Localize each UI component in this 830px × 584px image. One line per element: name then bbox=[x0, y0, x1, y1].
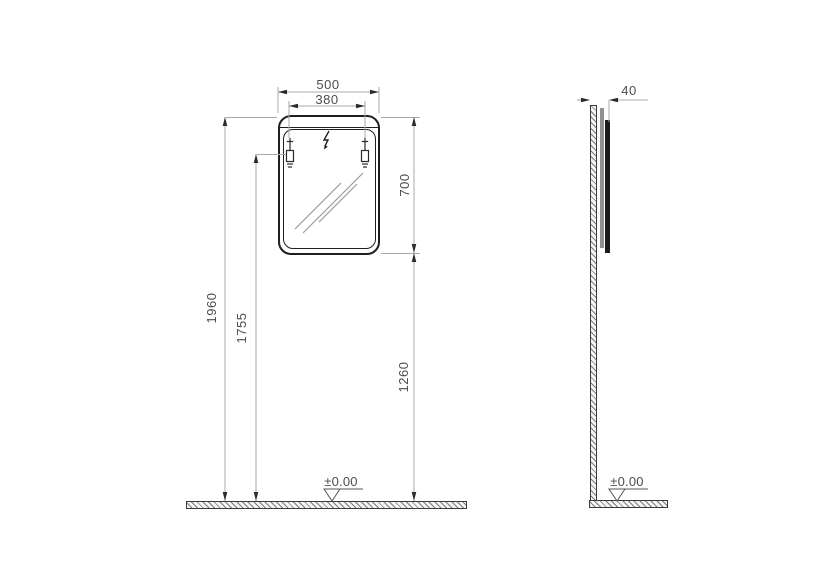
dim-label-underside-height: 1260 bbox=[396, 355, 412, 399]
floor-front-view bbox=[186, 501, 467, 509]
mirror-glass bbox=[283, 129, 376, 249]
floor-side-view bbox=[589, 500, 668, 508]
technical-drawing-canvas: 500 380 700 1260 1960 1755 40 ±0.00 ±0.0… bbox=[0, 0, 830, 584]
dim-label-mounting-height: 1755 bbox=[234, 306, 250, 350]
dim-label-depth: 40 bbox=[612, 83, 646, 99]
wall-side-view bbox=[590, 105, 597, 501]
datum-level-icon-front bbox=[324, 489, 363, 501]
floor-level-label-side: ±0.00 bbox=[603, 474, 651, 490]
dim-label-mounting-width: 380 bbox=[305, 92, 349, 108]
floor-level-label-front: ±0.00 bbox=[317, 474, 365, 490]
mirror-side-profile-back bbox=[600, 108, 604, 248]
dim-label-mirror-height: 700 bbox=[397, 163, 413, 207]
dim-label-overall-height: 1960 bbox=[204, 286, 220, 330]
drawing-linework bbox=[0, 0, 830, 584]
mirror-side-profile bbox=[605, 120, 611, 253]
dim-label-overall-width: 500 bbox=[306, 77, 350, 93]
mirror-top-cap-line bbox=[279, 127, 379, 128]
